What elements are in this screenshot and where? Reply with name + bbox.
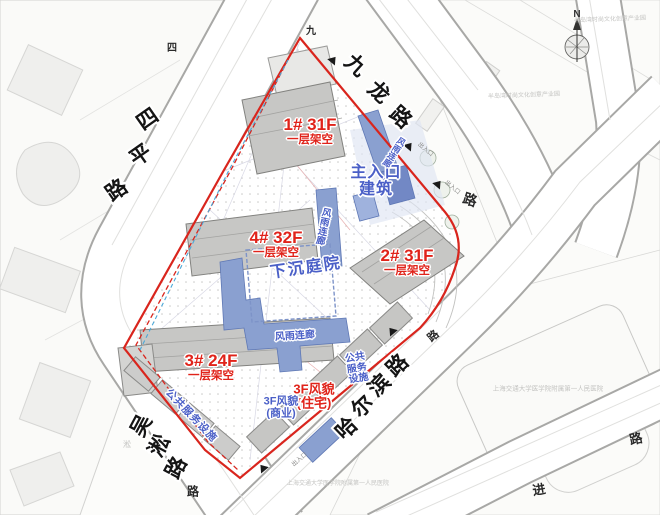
annotation-hospital-2: 上海交通大学医学院附属第一人民医院	[287, 481, 389, 487]
heritage-residential-line1: 3F风貌	[293, 382, 334, 396]
road-label-siping-small: 四	[167, 44, 177, 55]
heritage-residential-line2: (住宅)	[293, 396, 334, 410]
building-3-label: 3# 24F 一层架空	[185, 352, 238, 382]
building-3-sub: 一层架空	[185, 370, 238, 382]
main-entrance-label: 主入口 建筑	[350, 165, 401, 199]
annotation-hospital-1: 上海交通大学医学院附属第一人民医院	[493, 387, 604, 394]
building-4-sub: 一层架空	[250, 247, 303, 259]
heritage-residential-label: 3F风貌 (住宅)	[293, 382, 334, 409]
building-1-sub: 一层架空	[284, 134, 337, 146]
building-2-label: 2# 31F 一层架空	[381, 247, 434, 277]
building-3-title: 3# 24F	[185, 352, 238, 370]
building-4-title: 4# 32F	[250, 229, 303, 247]
building-2-sub: 一层架空	[381, 265, 434, 277]
building-1-title: 1# 31F	[284, 116, 337, 134]
road-label-wusong-small: 路	[187, 486, 199, 499]
road-label-wujin-char-1: 进	[531, 482, 546, 498]
heritage-commercial-line2: (商业)	[264, 408, 299, 420]
road-label-wusong-tiny: 淞	[123, 441, 131, 449]
heritage-commercial-line1: 3F风貌	[264, 396, 299, 408]
road-label-wujin-char-2: 路	[628, 431, 644, 447]
building-4-label: 4# 32F 一层架空	[250, 229, 303, 259]
main-entrance-line1: 主入口	[350, 165, 401, 182]
site-plan-canvas: 四 平 路 四 九 九 龙 路 路 哈 尔 滨 路 路 吴 淞 路 淞 路 进 …	[0, 0, 660, 515]
building-2-title: 2# 31F	[381, 247, 434, 265]
heritage-commercial-label: 3F风貌 (商业)	[264, 396, 299, 419]
main-entrance-line2: 建筑	[350, 182, 401, 199]
building-1-label: 1# 31F 一层架空	[284, 116, 337, 146]
road-label-jiulong-small: 九	[306, 27, 316, 38]
